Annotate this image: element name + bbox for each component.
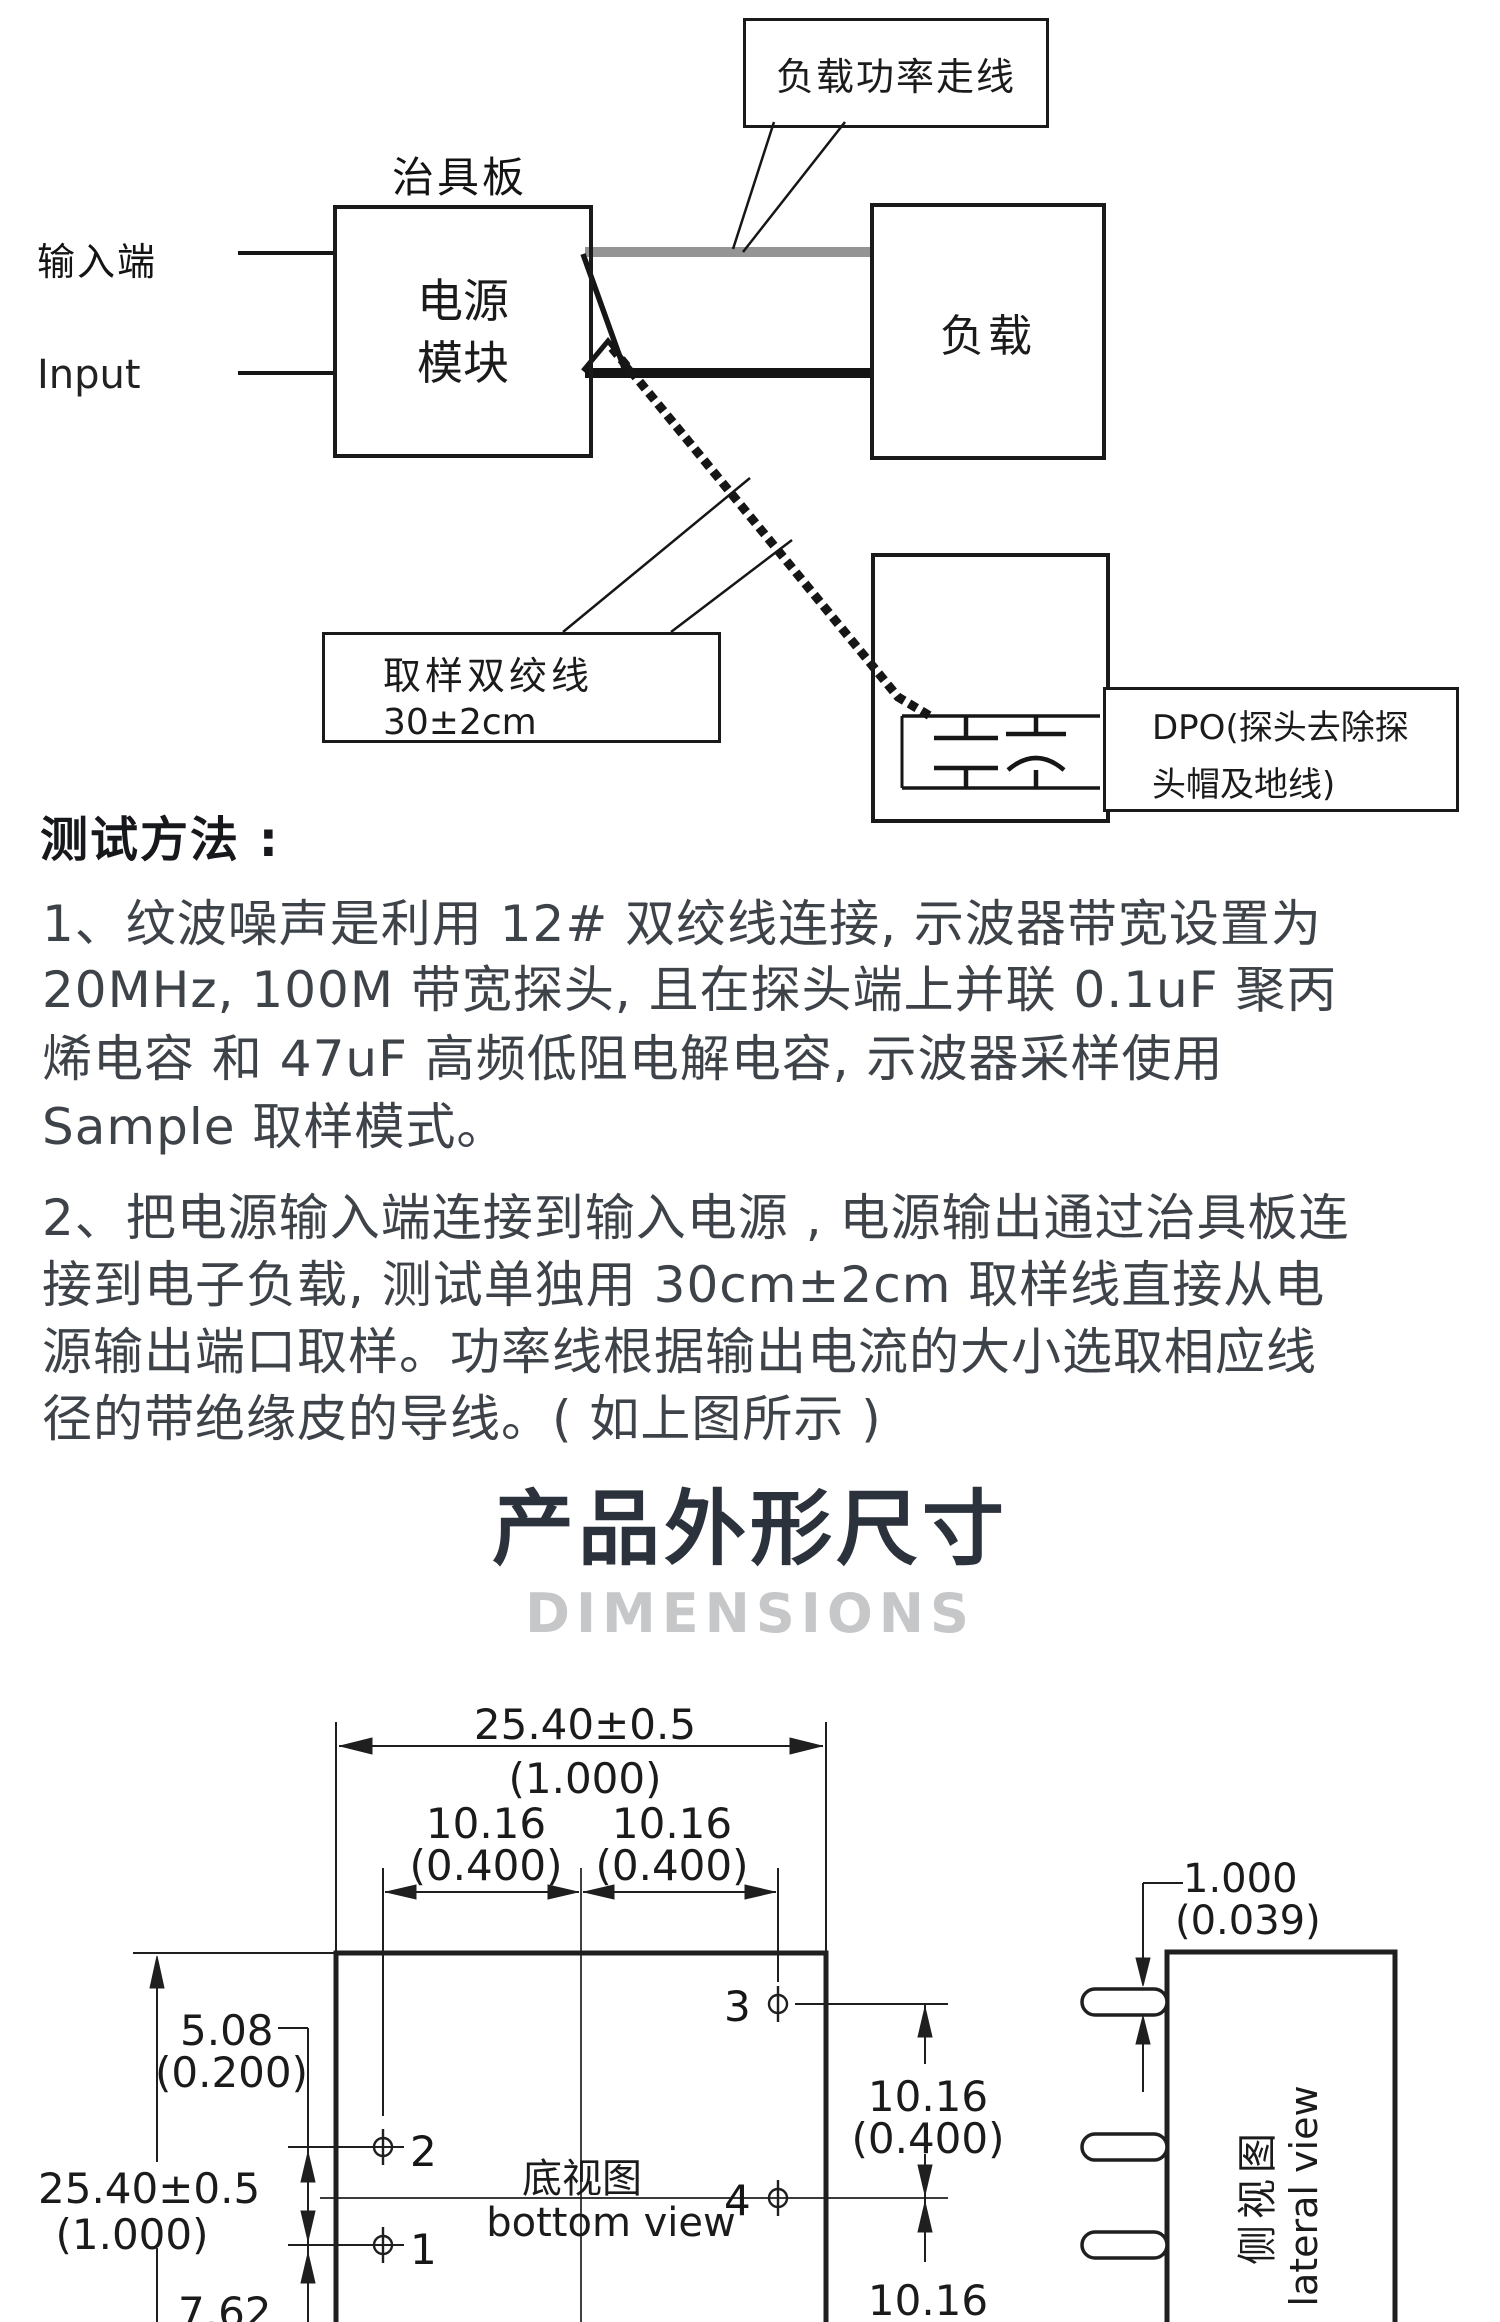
lateral-view-label-en: lateral view [1282, 2085, 1328, 2306]
dim-offset-in: (0.200) [155, 2048, 295, 2097]
dim-pin-thickness-in: (0.039) [1175, 1898, 1355, 1944]
lateral-view-label: 侧视图 lateral view [1231, 2036, 1331, 2322]
dim-width-in: (1.000) [485, 1754, 685, 1803]
dim-pitch-left-in: (0.400) [396, 1841, 576, 1890]
test-method-item1-line1: 1、纹波噪声是利用 12# 双绞线连接, 示波器带宽设置为 [42, 884, 1322, 956]
dim-right-pitch2-in: (0.400) [838, 2318, 1018, 2322]
dpo-note-line2: 头帽及地线) [1152, 757, 1335, 806]
test-method-heading: 测试方法 : [40, 800, 280, 870]
callout-funnel-line-1 [733, 122, 774, 249]
test-method-item1-line4: Sample 取样模式。 [42, 1087, 507, 1159]
test-method-item2-line2: 接到电子负载, 测试单独用 30cm±2cm 取样线直接从电 [42, 1245, 1325, 1317]
power-module-box: 电源 模块 [333, 205, 593, 458]
fixture-board-label: 治具板 [392, 144, 527, 205]
pin-label-2: 2 [410, 2127, 437, 2176]
sample-wire-label-line1: 取样双绞线 [383, 645, 593, 700]
dpo-note-line1: DPO(探头去除探 [1152, 700, 1409, 749]
oscilloscope-box [871, 553, 1110, 823]
sample-leader-line-1 [563, 478, 750, 632]
load-box: 负载 [870, 203, 1106, 460]
dim-right-pitch2-mm: 10.16 [853, 2276, 1003, 2322]
pin-marker-icon [769, 1986, 787, 2022]
test-method-item1-line3: 烯电容 和 47uF 高频低阻电解电容, 示波器采样使用 [42, 1019, 1224, 1091]
lateral-pin-icon [1082, 2232, 1167, 2258]
power-module-label-line2: 模块 [417, 332, 509, 394]
pin-label-1: 1 [410, 2225, 437, 2274]
test-method-item2-line3: 源输出端口取样。功率线根据输出电流的大小选取相应线 [42, 1312, 1317, 1384]
input-terminal-label-zh: 输入端 [37, 231, 157, 286]
pin-label-3: 3 [724, 1982, 751, 2031]
lateral-view-label-zh: 侧视图 [1234, 2127, 1282, 2265]
callout-load-trace-box: 负载功率走线 [743, 18, 1049, 128]
bottom-view-label-en: bottom view [461, 2200, 761, 2246]
dimensions-title-zh: 产品外形尺寸 [0, 1462, 1500, 1581]
dim-height-mm: 25.40±0.5 [38, 2164, 256, 2213]
power-module-label-line1: 电源 [417, 270, 509, 332]
test-method-item2-line4: 径的带绝缘皮的导线。( 如上图所示 ) [42, 1379, 882, 1451]
sample-wire-box: 取样双绞线 30±2cm [322, 632, 721, 743]
callout-load-trace-label: 负载功率走线 [776, 46, 1016, 101]
page: 负载功率走线 治具板 输入端 Input 电源 模块 负载 取样双绞线 30±2… [0, 0, 1500, 2322]
test-method-item2-line1: 2、把电源输入端连接到输入电源 , 电源输出通过治具板连 [42, 1178, 1350, 1250]
lateral-pin-icon [1082, 2134, 1167, 2160]
dimensions-title-en: DIMENSIONS [0, 1582, 1500, 1645]
sample-wire-label-line2: 30±2cm [383, 702, 537, 743]
dim-height-in: (1.000) [48, 2210, 216, 2259]
lateral-pin-icon [1082, 1989, 1167, 2015]
callout-funnel-line-2 [743, 122, 845, 252]
dpo-note-box: DPO(探头去除探 头帽及地线) [1103, 687, 1459, 812]
linework [0, 0, 1500, 2322]
load-label: 负载 [940, 300, 1036, 364]
sample-leader-line-2 [671, 540, 792, 632]
input-terminal-label-en: Input [37, 352, 141, 398]
bottom-view-label-zh: 底视图 [482, 2146, 682, 2204]
dim-bottom-offset-mm: 7.62 [178, 2288, 268, 2322]
dim-width-mm: 25.40±0.5 [455, 1700, 715, 1749]
dim-right-pitch-in: (0.400) [838, 2114, 1018, 2163]
test-method-item1-line2: 20MHz, 100M 带宽探头, 且在探头端上并联 0.1uF 聚丙 [42, 950, 1337, 1022]
dim-pin-thickness-mm: 1.000 [1183, 1856, 1343, 1902]
dim-pitch-right-in: (0.400) [582, 1841, 762, 1890]
